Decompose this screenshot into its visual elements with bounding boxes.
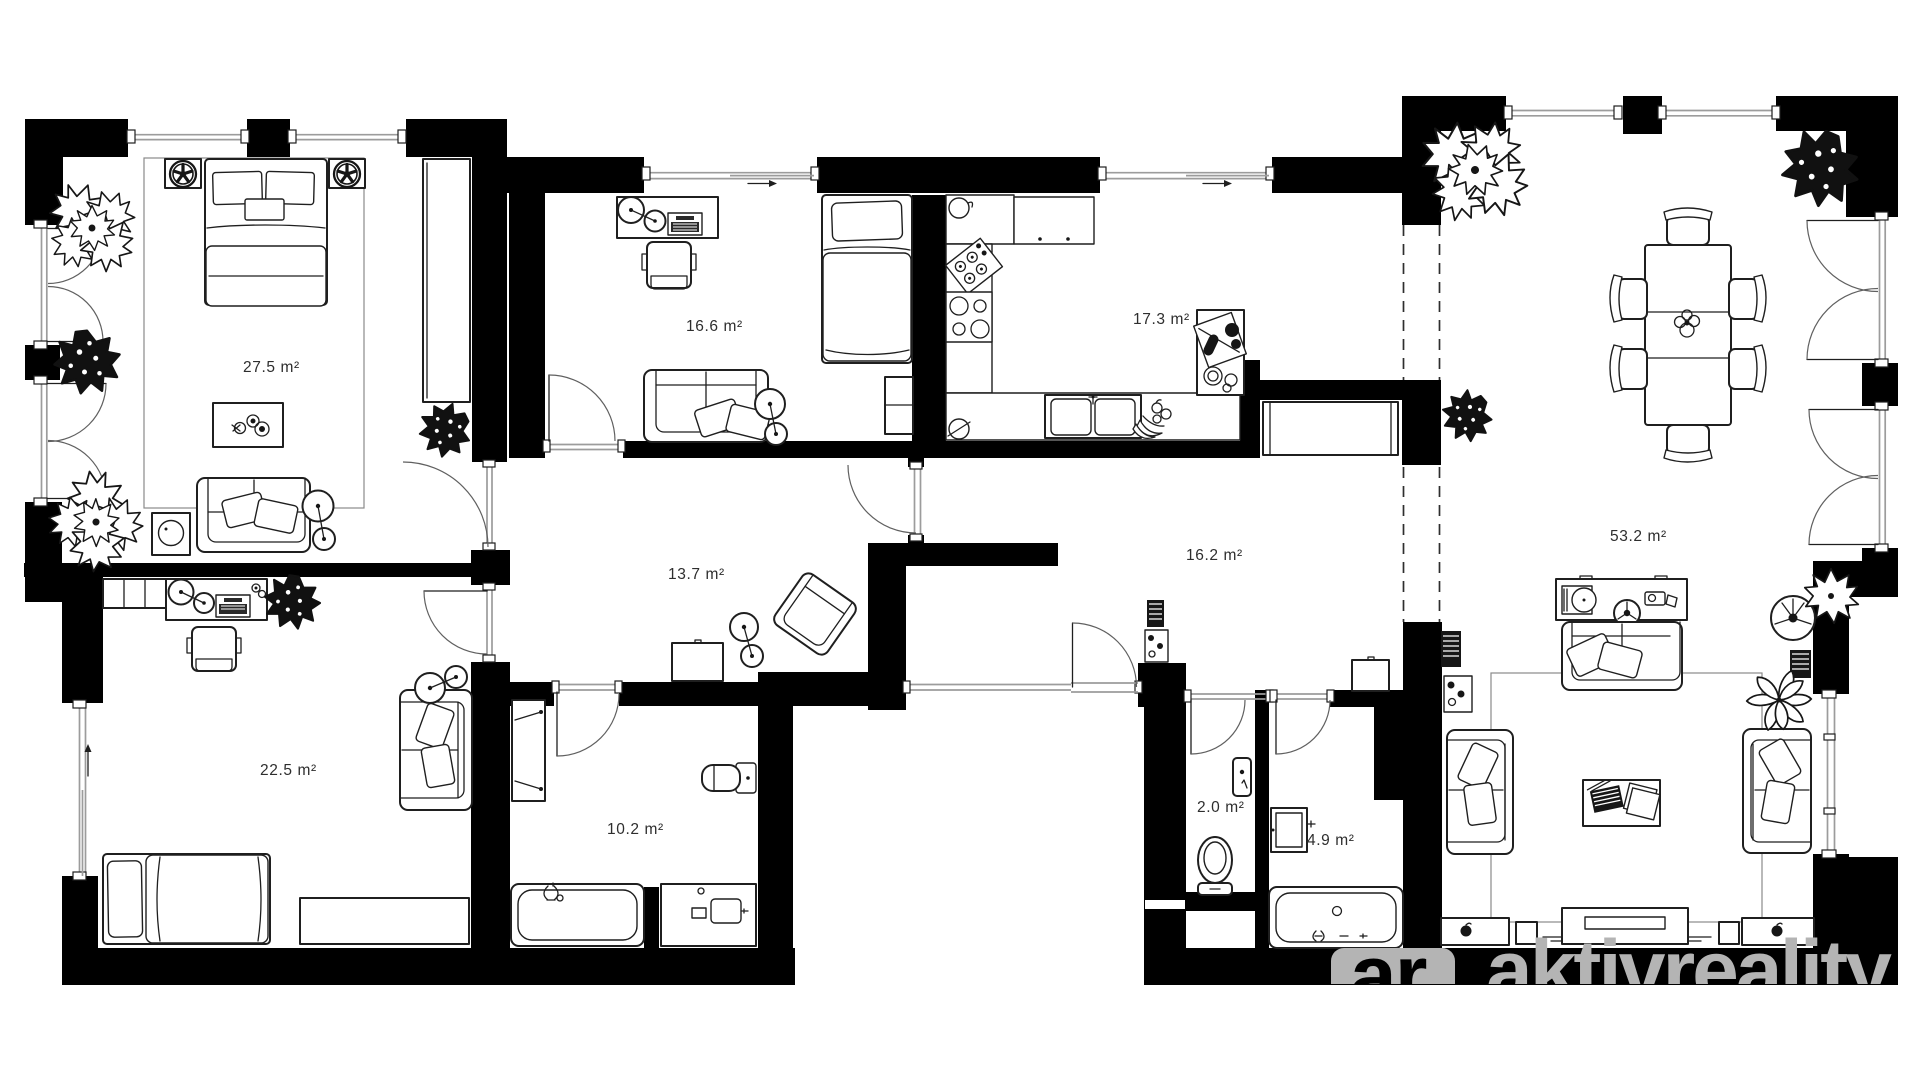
svg-text:22.5 m²: 22.5 m² [260, 762, 317, 779]
svg-text:2.0 m²: 2.0 m² [1197, 799, 1245, 816]
svg-text:27.5 m²: 27.5 m² [243, 359, 300, 376]
svg-text:16.2 m²: 16.2 m² [1186, 547, 1243, 564]
svg-text:17.3 m²: 17.3 m² [1133, 311, 1190, 328]
svg-text:4.9 m²: 4.9 m² [1307, 832, 1355, 849]
svg-text:16.6 m²: 16.6 m² [686, 318, 743, 335]
svg-text:53.2 m²: 53.2 m² [1610, 528, 1667, 545]
svg-text:13.7 m²: 13.7 m² [668, 566, 725, 583]
svg-text:10.2 m²: 10.2 m² [607, 821, 664, 838]
